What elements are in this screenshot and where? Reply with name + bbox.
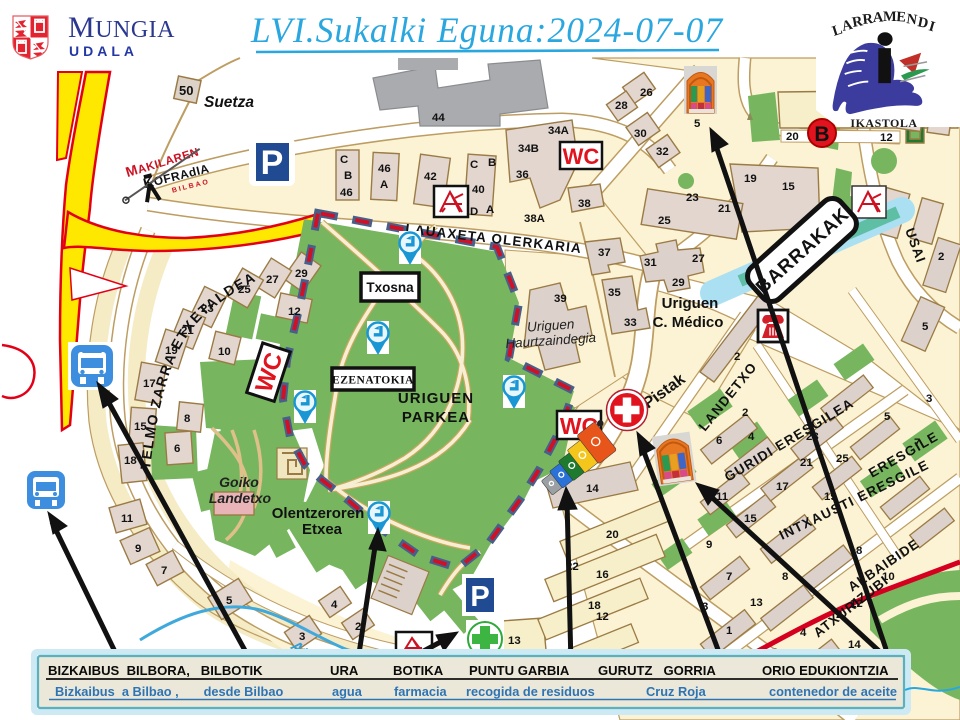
svg-text:Bizkaibus a Bilbao , de: Bizkaibus a Bilbao , desde Bilbao: [55, 684, 283, 699]
svg-text:42: 42: [424, 171, 437, 183]
svg-text:Olentzeroren: Olentzeroren: [272, 505, 365, 522]
svg-text:26: 26: [640, 87, 653, 99]
svg-text:21: 21: [181, 325, 194, 337]
svg-text:4: 4: [331, 599, 338, 611]
svg-text:Goiko: Goiko: [219, 474, 259, 490]
svg-text:5: 5: [694, 118, 701, 130]
svg-text:28: 28: [615, 100, 628, 112]
svg-text:contenedor de aceite: contenedor de aceite: [769, 684, 897, 699]
svg-text:29: 29: [672, 277, 685, 289]
svg-text:Etxea: Etxea: [302, 521, 343, 538]
svg-text:A: A: [380, 179, 388, 191]
svg-text:12: 12: [596, 611, 609, 623]
svg-text:39: 39: [554, 293, 567, 305]
svg-text:46: 46: [340, 187, 353, 199]
svg-text:PARKEA: PARKEA: [402, 409, 470, 426]
svg-text:B: B: [814, 123, 829, 146]
svg-text:38A: 38A: [524, 213, 545, 225]
svg-text:LVI.Sukalki Eguna:2024-07-07: LVI.Sukalki Eguna:2024-07-07: [250, 10, 724, 50]
svg-text:BIZKAIBUS BILBORA, BILBOTIK: BIZKAIBUS BILBORA, BILBOTIK: [48, 663, 263, 678]
svg-text:12: 12: [880, 132, 893, 144]
svg-text:ORIO EDUKIONTZIA: ORIO EDUKIONTZIA: [762, 663, 889, 678]
svg-text:46: 46: [378, 163, 391, 175]
svg-text:D: D: [470, 206, 478, 218]
svg-text:16: 16: [596, 569, 609, 581]
svg-text:15: 15: [782, 181, 795, 193]
svg-text:35: 35: [608, 287, 621, 299]
svg-text:EZENATOKIA: EZENATOKIA: [332, 375, 414, 387]
svg-text:23: 23: [686, 192, 699, 204]
svg-text:7: 7: [726, 571, 732, 583]
svg-text:Landetxo: Landetxo: [209, 490, 272, 506]
svg-text:B: B: [488, 157, 496, 169]
svg-text:A: A: [486, 204, 494, 216]
svg-text:C: C: [470, 159, 478, 171]
svg-text:6: 6: [174, 443, 180, 455]
svg-text:URA: URA: [330, 663, 359, 678]
svg-text:3: 3: [299, 631, 305, 643]
svg-text:2: 2: [742, 407, 748, 419]
svg-text:Txosna: Txosna: [366, 280, 414, 295]
svg-text:agua: agua: [332, 684, 363, 699]
svg-text:7: 7: [161, 565, 167, 577]
svg-text:10: 10: [882, 571, 895, 583]
svg-text:Uriguen: Uriguen: [662, 295, 719, 312]
svg-text:33: 33: [624, 317, 637, 329]
svg-text:37: 37: [598, 247, 611, 259]
svg-text:12: 12: [850, 598, 863, 610]
svg-text:PUNTU GARBIA: PUNTU GARBIA: [469, 663, 570, 678]
svg-text:17: 17: [776, 481, 789, 493]
svg-text:15: 15: [744, 513, 757, 525]
svg-text:C: C: [340, 154, 348, 166]
svg-text:18: 18: [124, 455, 137, 467]
svg-text:20: 20: [606, 529, 619, 541]
svg-text:6: 6: [716, 435, 722, 447]
svg-text:32: 32: [656, 146, 669, 158]
svg-text:20: 20: [786, 131, 799, 143]
svg-text:8: 8: [184, 413, 190, 425]
svg-text:36: 36: [516, 169, 529, 181]
svg-text:P: P: [261, 144, 284, 182]
svg-text:27: 27: [692, 253, 705, 265]
svg-text:B: B: [344, 170, 352, 182]
svg-text:34B: 34B: [518, 143, 539, 155]
svg-text:1: 1: [726, 625, 733, 637]
svg-text:44: 44: [432, 112, 445, 124]
svg-text:UDALA: UDALA: [69, 43, 138, 59]
svg-text:13: 13: [508, 635, 521, 647]
svg-text:38: 38: [578, 198, 591, 210]
svg-text:31: 31: [644, 257, 657, 269]
svg-text:11: 11: [121, 513, 134, 525]
svg-text:WC: WC: [563, 144, 600, 169]
svg-text:9: 9: [135, 543, 141, 555]
svg-text:8: 8: [856, 545, 862, 557]
svg-text:34A: 34A: [548, 125, 569, 137]
svg-text:14: 14: [586, 483, 599, 495]
svg-text:30: 30: [634, 128, 647, 140]
svg-text:7: 7: [914, 437, 920, 449]
svg-text:25: 25: [836, 453, 849, 465]
svg-text:23: 23: [201, 303, 214, 315]
svg-text:5: 5: [226, 595, 233, 607]
svg-text:27: 27: [266, 274, 279, 286]
svg-text:25: 25: [658, 215, 671, 227]
svg-text:2: 2: [734, 351, 740, 363]
svg-text:12: 12: [288, 306, 301, 318]
svg-text:3: 3: [926, 393, 932, 405]
svg-text:farmacia: farmacia: [394, 684, 448, 699]
svg-text:URIGUEN: URIGUEN: [398, 390, 474, 407]
svg-text:4: 4: [748, 431, 755, 443]
svg-text:C. Médico: C. Médico: [653, 314, 724, 331]
svg-text:5: 5: [884, 411, 891, 423]
svg-text:10: 10: [218, 346, 231, 358]
svg-text:Suetza: Suetza: [204, 94, 254, 111]
svg-text:17: 17: [143, 378, 156, 390]
svg-text:9: 9: [706, 539, 712, 551]
svg-text:25: 25: [238, 284, 251, 296]
svg-text:15: 15: [134, 421, 147, 433]
svg-text:21: 21: [718, 203, 731, 215]
svg-text:8: 8: [782, 571, 788, 583]
svg-text:2: 2: [938, 251, 944, 263]
svg-text:40: 40: [472, 184, 485, 196]
svg-text:Cruz Roja: Cruz Roja: [646, 684, 707, 699]
svg-text:5: 5: [922, 321, 929, 333]
svg-text:19: 19: [744, 173, 757, 185]
svg-text:19: 19: [165, 345, 178, 357]
svg-text:IKASTOLA: IKASTOLA: [850, 116, 917, 130]
svg-text:GURUTZ GORRIA: GURUTZ GORRIA: [598, 663, 716, 678]
svg-text:P: P: [470, 581, 489, 613]
svg-text:29: 29: [295, 268, 308, 280]
svg-text:4: 4: [800, 627, 807, 639]
svg-text:13: 13: [750, 597, 763, 609]
svg-text:recogida de residuos: recogida de residuos: [466, 684, 595, 699]
svg-text:50: 50: [179, 83, 193, 98]
svg-text:BOTIKA: BOTIKA: [393, 663, 444, 678]
svg-text:21: 21: [800, 457, 813, 469]
